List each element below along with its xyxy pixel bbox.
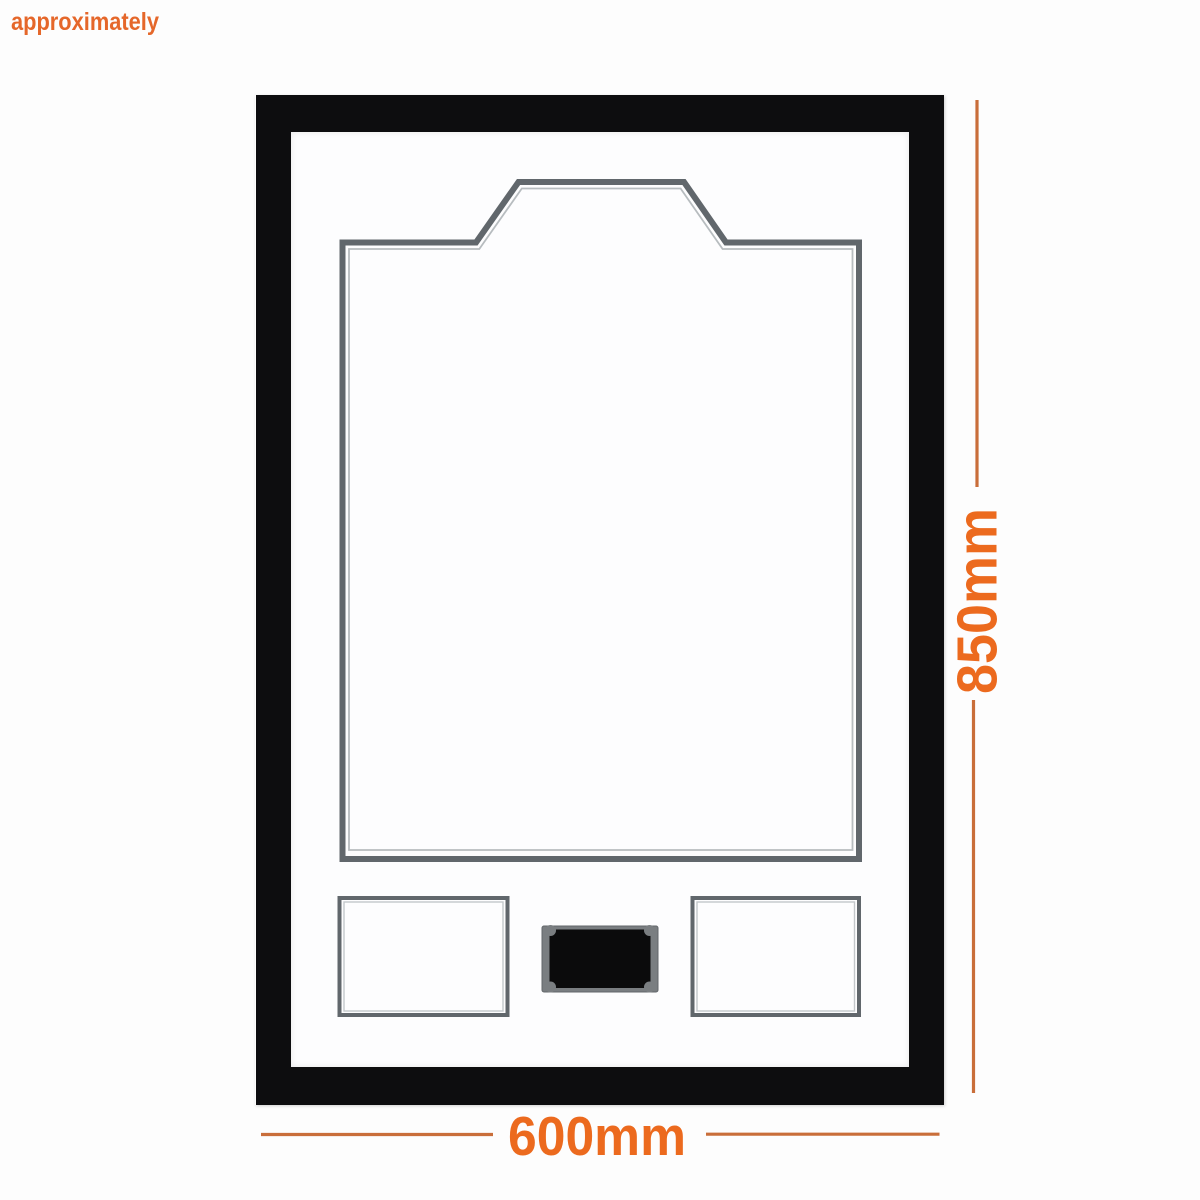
svg-text:850mm: 850mm [946, 508, 1010, 694]
svg-text:approximately: approximately [11, 8, 159, 36]
svg-text:600mm: 600mm [508, 1105, 686, 1167]
